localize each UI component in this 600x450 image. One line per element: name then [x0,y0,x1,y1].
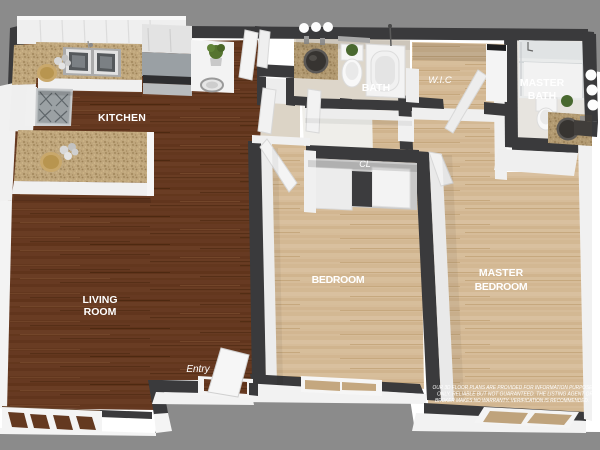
svg-text:BEDROOM: BEDROOM [312,274,365,286]
svg-text:KITCHEN: KITCHEN [98,112,146,124]
svg-text:BROKER MAKES NO WARRANTY. VERI: BROKER MAKES NO WARRANTY. VERIFICATION I… [435,398,589,404]
svg-text:ONLY. RELIABLE BUT NOT GUARANT: ONLY. RELIABLE BUT NOT GUARANTEED. THE L… [437,392,593,398]
svg-text:BEDROOM: BEDROOM [475,281,528,293]
svg-text:LIVING: LIVING [82,294,117,306]
svg-text:OUR 3D FLOOR PLANS ARE PROVIDE: OUR 3D FLOOR PLANS ARE PROVIDED FOR INFO… [433,385,596,391]
svg-text:W.I.C: W.I.C [428,75,452,86]
svg-text:BATH: BATH [528,90,556,102]
svg-text:BATH: BATH [362,82,390,94]
svg-text:Entry: Entry [186,364,210,375]
svg-text:CL: CL [359,159,371,169]
svg-text:MASTER: MASTER [520,77,565,89]
svg-text:ROOM: ROOM [84,306,117,318]
svg-text:MASTER: MASTER [479,267,524,279]
